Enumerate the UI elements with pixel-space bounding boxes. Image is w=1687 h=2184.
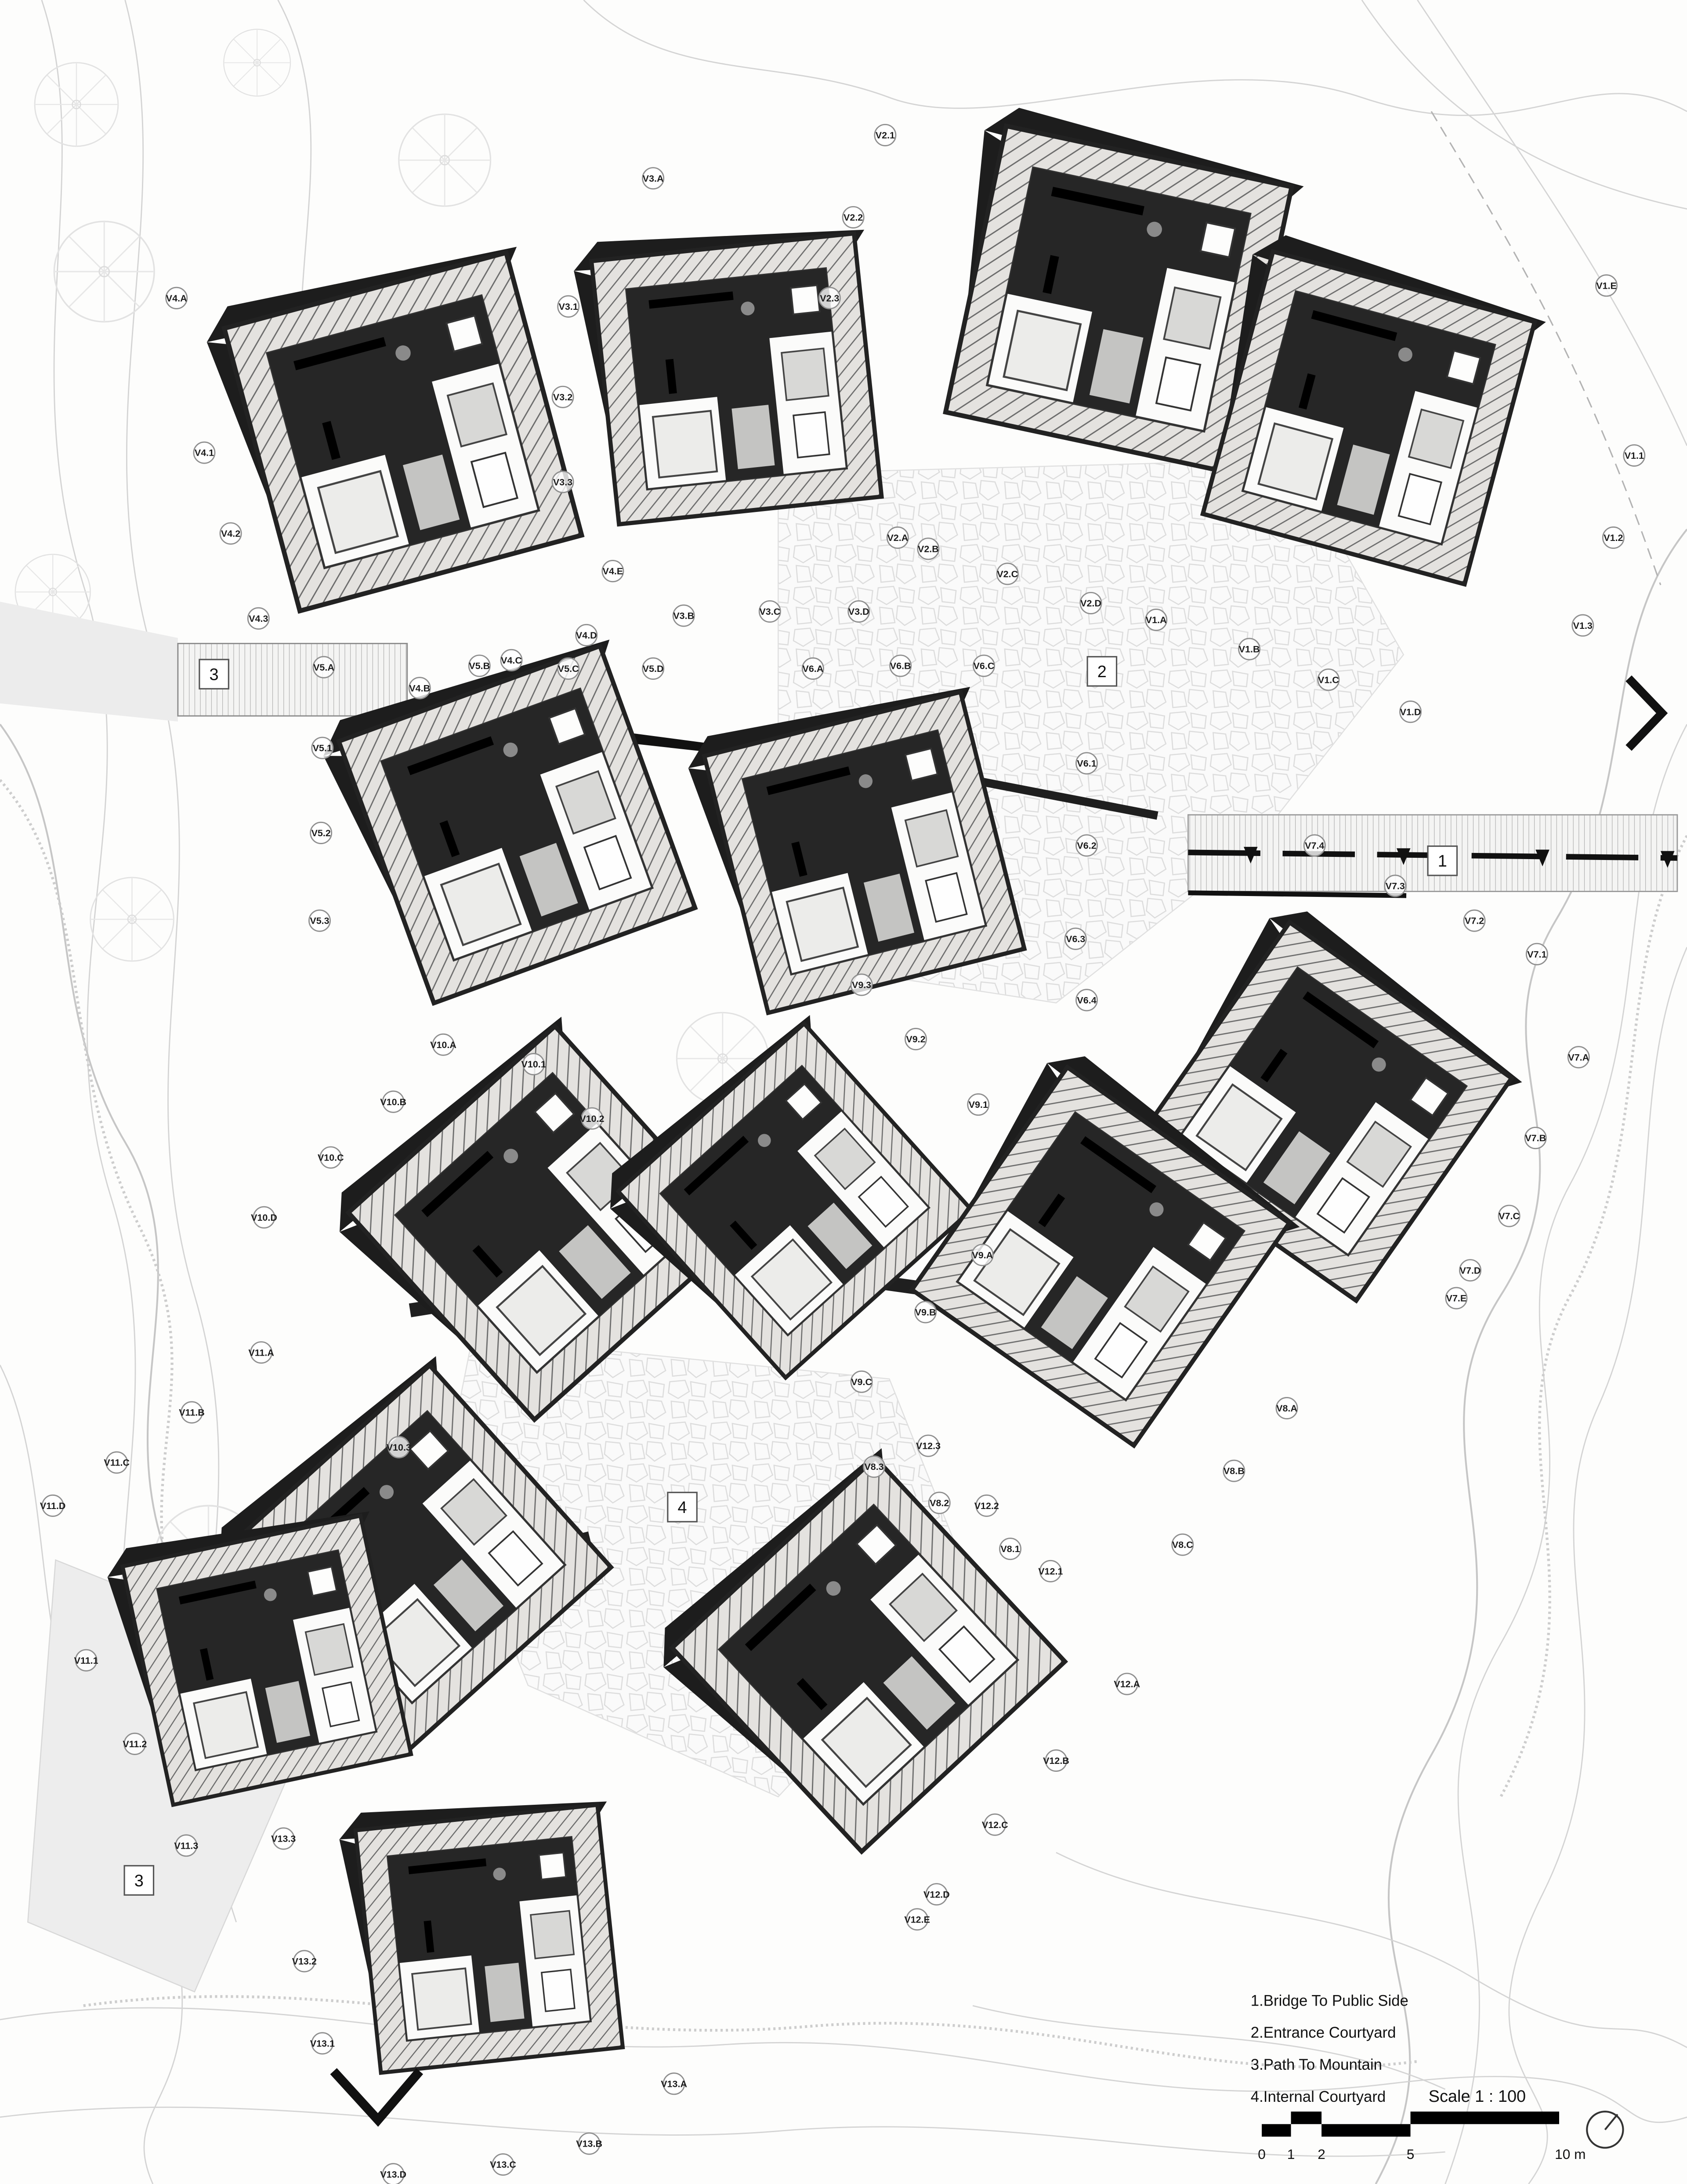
svg-text:V7.C: V7.C [1499, 1211, 1520, 1222]
svg-text:V2.2: V2.2 [843, 212, 863, 223]
unit-label-V2.B: V2.B [918, 538, 939, 559]
svg-text:V12.D: V12.D [923, 1889, 950, 1900]
svg-text:3: 3 [210, 665, 219, 684]
svg-text:V5.C: V5.C [558, 664, 579, 674]
unit-label-V6.A: V6.A [802, 658, 823, 679]
svg-text:V11.1: V11.1 [74, 1655, 98, 1666]
svg-text:V10.2: V10.2 [579, 1114, 604, 1124]
unit-label-V12.D: V12.D [923, 1884, 950, 1905]
east-direction-chevron-icon [1629, 678, 1662, 748]
svg-text:V11.C: V11.C [104, 1458, 130, 1468]
north-arrow-icon [1587, 2111, 1623, 2148]
svg-text:V1.D: V1.D [1400, 707, 1421, 717]
unit-label-V7.B: V7.B [1525, 1128, 1546, 1149]
key-point-1: 1 [1428, 846, 1457, 876]
svg-text:V7.A: V7.A [1568, 1052, 1589, 1063]
svg-text:V4.E: V4.E [603, 566, 623, 577]
scale-label: Scale 1 : 100 [1429, 2087, 1526, 2106]
svg-text:4: 4 [678, 1498, 687, 1517]
unit-label-V3.A: V3.A [643, 168, 664, 189]
svg-text:V5.2: V5.2 [311, 828, 331, 838]
svg-text:V9.C: V9.C [851, 1377, 872, 1387]
unit-label-V4.2: V4.2 [220, 523, 241, 544]
svg-text:V5.D: V5.D [643, 664, 664, 674]
svg-text:V2.B: V2.B [918, 544, 939, 554]
site-plan-drawing: V2.1V3.AV2.2V4.AV3.1V2.3V1.EV3.2V4.1V3.3… [0, 0, 1687, 2184]
svg-text:V12.2: V12.2 [974, 1501, 999, 1511]
svg-text:V1.C: V1.C [1318, 675, 1339, 685]
svg-text:V13.C: V13.C [490, 2159, 516, 2170]
svg-text:V6.4: V6.4 [1077, 995, 1096, 1005]
key-point-3: 3 [124, 1866, 153, 1895]
svg-text:V5.A: V5.A [313, 662, 334, 673]
svg-text:V4.3: V4.3 [249, 613, 268, 624]
unit-label-V12.2: V12.2 [974, 1495, 999, 1516]
svg-text:V6.C: V6.C [974, 661, 995, 671]
svg-text:V13.1: V13.1 [310, 2038, 335, 2049]
unit-label-V4.D: V4.D [576, 624, 597, 646]
svg-text:V8.A: V8.A [1276, 1403, 1297, 1414]
unit-label-V7.1: V7.1 [1526, 943, 1547, 965]
scale-tick-0: 0 [1258, 2146, 1266, 2162]
svg-text:V3.2: V3.2 [553, 392, 572, 403]
unit-label-V9.B: V9.B [915, 1302, 936, 1323]
svg-text:V4.B: V4.B [409, 683, 430, 693]
unit-label-V9.1: V9.1 [968, 1094, 989, 1115]
unit-label-V13.2: V13.2 [292, 1951, 317, 1972]
unit-label-V8.C: V8.C [1172, 1534, 1193, 1555]
svg-text:V9.1: V9.1 [969, 1099, 988, 1110]
legend: 1.Bridge To Public Side 2.Entrance Court… [1251, 1992, 1408, 2105]
unit-label-V4.C: V4.C [501, 649, 522, 671]
svg-text:V7.3: V7.3 [1386, 881, 1405, 891]
svg-text:V11.2: V11.2 [123, 1739, 147, 1749]
unit-label-V12.E: V12.E [904, 1909, 930, 1930]
unit-label-V7.A: V7.A [1568, 1047, 1589, 1068]
unit-label-V3.2: V3.2 [552, 386, 573, 407]
svg-text:V7.2: V7.2 [1465, 916, 1484, 926]
key-point-2: 2 [1087, 657, 1116, 686]
unit-label-V1.C: V1.C [1318, 669, 1339, 690]
svg-text:V3.C: V3.C [759, 606, 780, 617]
villa-v13 [337, 1787, 633, 2075]
svg-text:V9.2: V9.2 [906, 1034, 925, 1045]
unit-label-V7.E: V7.E [1446, 1288, 1467, 1309]
unit-label-V13.C: V13.C [490, 2154, 516, 2175]
unit-label-V13.3: V13.3 [271, 1828, 296, 1849]
svg-text:V1.E: V1.E [1596, 280, 1617, 291]
svg-text:V4.2: V4.2 [221, 529, 240, 539]
unit-label-V1.3: V1.3 [1572, 615, 1593, 636]
unit-label-V12.B: V12.B [1043, 1750, 1069, 1771]
unit-label-V1.2: V1.2 [1603, 527, 1624, 548]
key-point-3: 3 [199, 660, 228, 689]
svg-text:V13.2: V13.2 [292, 1956, 317, 1966]
svg-text:V12.B: V12.B [1043, 1756, 1069, 1766]
svg-text:1: 1 [1438, 852, 1447, 871]
villa-v3 [571, 214, 892, 526]
svg-text:V10.1: V10.1 [521, 1059, 546, 1070]
unit-label-V12.A: V12.A [1114, 1673, 1140, 1694]
svg-text:V11.B: V11.B [179, 1408, 205, 1418]
unit-label-V13.A: V13.A [661, 2073, 687, 2094]
unit-label-V1.A: V1.A [1146, 609, 1167, 630]
svg-text:V5.3: V5.3 [310, 916, 329, 926]
svg-text:V1.A: V1.A [1146, 615, 1167, 625]
svg-text:V12.3: V12.3 [916, 1441, 941, 1451]
unit-label-V11.B: V11.B [179, 1402, 205, 1423]
svg-text:V9.A: V9.A [972, 1250, 993, 1260]
unit-label-V8.A: V8.A [1276, 1397, 1297, 1419]
scale-tick-5: 5 [1407, 2146, 1415, 2162]
svg-text:V8.2: V8.2 [930, 1498, 949, 1509]
unit-label-V4.E: V4.E [602, 560, 623, 581]
svg-text:V4.1: V4.1 [195, 448, 214, 458]
unit-label-V8.1: V8.1 [1000, 1538, 1021, 1560]
site-plan-page: V2.1V3.AV2.2V4.AV3.1V2.3V1.EV3.2V4.1V3.3… [0, 0, 1687, 2184]
svg-text:V1.3: V1.3 [1573, 620, 1593, 631]
unit-label-V13.B: V13.B [576, 2133, 602, 2154]
svg-text:V8.3: V8.3 [864, 1462, 883, 1472]
svg-text:V2.C: V2.C [997, 569, 1018, 579]
svg-text:V13.3: V13.3 [271, 1834, 296, 1844]
svg-text:V5.B: V5.B [469, 661, 490, 671]
svg-text:V3.1: V3.1 [559, 301, 578, 312]
svg-text:V1.B: V1.B [1239, 644, 1260, 655]
unit-label-V2.3: V2.3 [819, 287, 840, 308]
unit-label-V8.3: V8.3 [864, 1456, 885, 1477]
unit-label-V2.D: V2.D [1080, 592, 1101, 613]
unit-label-V4.A: V4.A [166, 287, 187, 308]
unit-label-V6.C: V6.C [973, 655, 994, 676]
svg-text:V8.C: V8.C [1172, 1540, 1193, 1550]
svg-text:V6.3: V6.3 [1066, 934, 1085, 944]
unit-label-V13.1: V13.1 [310, 2033, 335, 2054]
unit-label-V10.B: V10.B [380, 1091, 406, 1112]
svg-text:V9.B: V9.B [915, 1307, 936, 1317]
legend-line-4: 4.Internal Courtyard [1251, 2088, 1386, 2105]
unit-label-V5.C: V5.C [558, 658, 579, 679]
unit-label-V12.C: V12.C [982, 1814, 1008, 1835]
svg-text:V2.D: V2.D [1080, 598, 1101, 609]
unit-label-V4.3: V4.3 [248, 608, 269, 629]
unit-label-V5.2: V5.2 [311, 822, 332, 843]
unit-label-V5.A: V5.A [313, 657, 334, 678]
svg-text:V10.C: V10.C [318, 1153, 344, 1163]
svg-text:V11.D: V11.D [40, 1501, 66, 1511]
svg-text:V13.B: V13.B [576, 2139, 602, 2149]
legend-line-2: 2.Entrance Courtyard [1251, 2024, 1396, 2041]
key-point-4: 4 [668, 1492, 697, 1522]
unit-label-V2.1: V2.1 [875, 124, 896, 145]
svg-text:V7.1: V7.1 [1527, 949, 1546, 960]
svg-text:V3.D: V3.D [848, 606, 869, 617]
unit-label-V3.1: V3.1 [558, 296, 579, 317]
unit-label-V9.A: V9.A [972, 1244, 993, 1266]
unit-label-V10.D: V10.D [251, 1207, 277, 1228]
unit-label-V10.A: V10.A [430, 1034, 456, 1055]
unit-label-V7.2: V7.2 [1464, 910, 1485, 931]
unit-label-V10.C: V10.C [318, 1147, 344, 1168]
svg-text:V4.D: V4.D [576, 630, 597, 641]
unit-label-V11.D: V11.D [40, 1495, 66, 1516]
unit-label-V12.1: V12.1 [1038, 1560, 1063, 1582]
svg-text:V5.1: V5.1 [313, 743, 332, 754]
svg-text:V12.A: V12.A [1114, 1679, 1140, 1690]
unit-label-V8.2: V8.2 [929, 1492, 950, 1513]
svg-text:V7.4: V7.4 [1305, 841, 1324, 851]
unit-label-V13.D: V13.D [380, 2164, 406, 2184]
svg-text:V6.A: V6.A [803, 664, 824, 674]
unit-label-V7.C: V7.C [1499, 1205, 1520, 1226]
unit-label-V1.1: V1.1 [1624, 445, 1645, 466]
svg-text:V1.2: V1.2 [1604, 533, 1623, 543]
svg-text:V13.D: V13.D [380, 2169, 406, 2180]
unit-label-V9.2: V9.2 [905, 1028, 926, 1049]
unit-label-V3.B: V3.B [673, 605, 694, 626]
unit-label-V6.2: V6.2 [1076, 835, 1097, 856]
west-path-surface [0, 602, 178, 722]
villa-center [594, 1004, 979, 1389]
svg-text:V10.3: V10.3 [387, 1442, 411, 1453]
svg-text:V12.1: V12.1 [1038, 1566, 1063, 1577]
svg-text:V6.B: V6.B [890, 661, 911, 671]
scale-tick-1: 1 [1287, 2146, 1295, 2162]
svg-text:2: 2 [1097, 663, 1107, 681]
unit-label-V5.D: V5.D [643, 658, 664, 679]
svg-text:V4.C: V4.C [501, 655, 522, 666]
unit-label-V1.B: V1.B [1239, 639, 1260, 660]
svg-text:V3.3: V3.3 [553, 477, 572, 487]
unit-label-V6.3: V6.3 [1065, 928, 1086, 949]
svg-text:V10.A: V10.A [430, 1040, 456, 1050]
unit-label-V2.2: V2.2 [843, 207, 864, 228]
unit-label-V5.3: V5.3 [309, 910, 330, 931]
unit-label-V6.1: V6.1 [1076, 753, 1097, 774]
svg-text:V8.B: V8.B [1224, 1466, 1245, 1477]
svg-text:V1.1: V1.1 [1625, 450, 1644, 461]
svg-text:V9.3: V9.3 [852, 980, 871, 990]
svg-text:V3.B: V3.B [673, 611, 694, 621]
scale-tick-10 m: 10 m [1555, 2146, 1586, 2162]
villa-v4 [199, 230, 593, 616]
unit-label-V2.A: V2.A [887, 527, 908, 548]
svg-text:3: 3 [134, 1872, 144, 1890]
svg-text:V2.A: V2.A [887, 533, 908, 543]
svg-text:V11.A: V11.A [248, 1347, 274, 1358]
unit-label-V4.1: V4.1 [194, 442, 215, 463]
unit-label-V4.B: V4.B [409, 678, 430, 699]
unit-label-V12.3: V12.3 [916, 1435, 941, 1456]
unit-label-V6.B: V6.B [890, 655, 911, 676]
svg-text:V2.1: V2.1 [876, 130, 895, 141]
scale-bar [1262, 2111, 1559, 2137]
svg-text:V6.2: V6.2 [1077, 841, 1096, 851]
svg-text:V2.3: V2.3 [820, 293, 839, 304]
svg-text:V7.D: V7.D [1460, 1265, 1481, 1276]
svg-text:V8.1: V8.1 [1000, 1544, 1020, 1554]
svg-text:V4.A: V4.A [166, 293, 187, 304]
unit-label-V7.D: V7.D [1460, 1260, 1481, 1281]
legend-line-3: 3.Path To Mountain [1251, 2056, 1382, 2073]
villa-buildings [102, 102, 1550, 2075]
south-direction-chevron-icon [333, 2071, 420, 2120]
unit-label-V8.B: V8.B [1224, 1460, 1245, 1481]
svg-text:V7.E: V7.E [1446, 1293, 1467, 1304]
svg-text:V11.3: V11.3 [174, 1840, 198, 1851]
unit-label-V9.3: V9.3 [851, 974, 872, 995]
scale-tick-2: 2 [1318, 2146, 1325, 2162]
svg-text:V13.A: V13.A [661, 2079, 687, 2089]
unit-label-V7.4: V7.4 [1304, 835, 1325, 856]
svg-text:V12.E: V12.E [904, 1914, 930, 1925]
unit-label-V3.3: V3.3 [552, 472, 573, 493]
legend-line-1: 1.Bridge To Public Side [1251, 1992, 1408, 2009]
unit-label-V1.E: V1.E [1596, 275, 1617, 296]
unit-label-V3.C: V3.C [759, 601, 780, 622]
svg-text:V10.D: V10.D [251, 1212, 277, 1223]
unit-label-V9.C: V9.C [851, 1371, 872, 1392]
unit-label-V7.3: V7.3 [1385, 875, 1406, 896]
unit-label-V6.4: V6.4 [1076, 990, 1097, 1011]
svg-text:V7.B: V7.B [1525, 1133, 1546, 1143]
unit-label-V11.A: V11.A [248, 1342, 274, 1363]
svg-text:V6.1: V6.1 [1077, 758, 1096, 769]
svg-text:V3.A: V3.A [643, 173, 664, 184]
unit-label-V5.1: V5.1 [312, 737, 333, 758]
svg-text:V10.B: V10.B [380, 1097, 406, 1107]
unit-label-V2.C: V2.C [997, 563, 1018, 584]
unit-label-V5.B: V5.B [469, 655, 490, 676]
unit-label-V1.D: V1.D [1400, 701, 1421, 722]
unit-label-V3.D: V3.D [848, 601, 869, 622]
svg-text:V12.C: V12.C [982, 1820, 1008, 1830]
unit-label-V11.C: V11.C [104, 1452, 130, 1473]
